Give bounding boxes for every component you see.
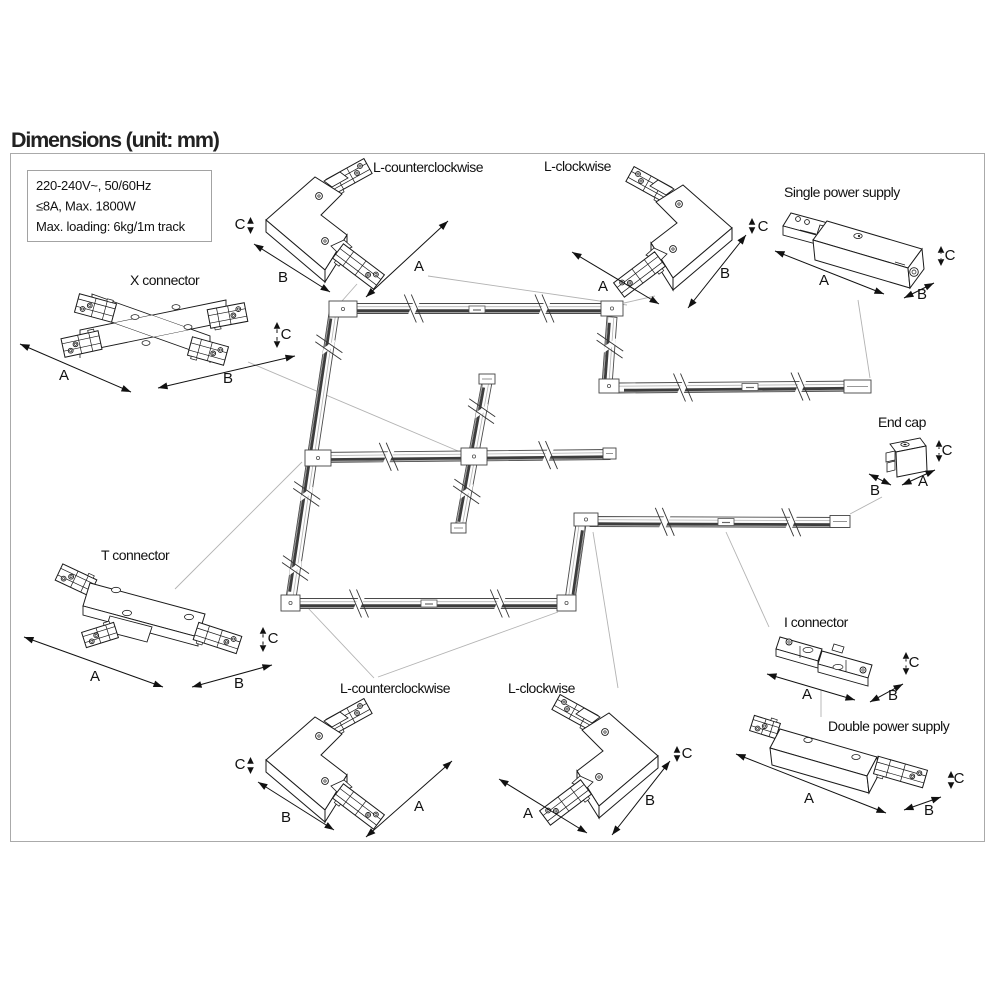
svg-text:B: B [720, 265, 730, 282]
svg-text:Single power supply: Single power supply [784, 184, 900, 200]
svg-text:C: C [758, 218, 769, 235]
svg-text:A: A [804, 790, 814, 807]
svg-text:C: C [235, 756, 246, 773]
svg-text:L-counterclockwise: L-counterclockwise [340, 680, 451, 696]
svg-text:A: A [802, 686, 812, 703]
svg-text:≤8A, Max. 1800W: ≤8A, Max. 1800W [36, 199, 136, 214]
svg-text:C: C [268, 630, 279, 647]
svg-text:B: B [645, 792, 655, 809]
svg-text:A: A [598, 278, 608, 295]
svg-text:A: A [819, 272, 829, 289]
svg-text:C: C [945, 247, 956, 264]
svg-text:X connector: X connector [130, 272, 200, 288]
svg-text:C: C [909, 654, 920, 671]
svg-text:C: C [682, 745, 693, 762]
svg-text:B: B [917, 286, 927, 303]
svg-text:L-counterclockwise: L-counterclockwise [373, 159, 484, 175]
svg-text:L-clockwise: L-clockwise [508, 680, 576, 696]
svg-text:C: C [954, 770, 965, 787]
svg-text:C: C [235, 216, 246, 233]
svg-text:Max. loading: 6kg/1m track: Max. loading: 6kg/1m track [36, 219, 186, 234]
svg-text:B: B [281, 809, 291, 826]
svg-text:A: A [918, 473, 928, 490]
svg-text:A: A [414, 798, 424, 815]
svg-text:A: A [59, 367, 69, 384]
svg-text:T connector: T connector [101, 547, 170, 563]
svg-text:Dimensions (unit: mm): Dimensions (unit: mm) [11, 128, 220, 152]
svg-text:A: A [523, 805, 533, 822]
svg-text:B: B [223, 370, 233, 387]
svg-text:End cap: End cap [878, 414, 927, 430]
svg-text:B: B [278, 269, 288, 286]
svg-text:Double power supply: Double power supply [828, 718, 950, 734]
svg-text:C: C [281, 326, 292, 343]
svg-text:A: A [90, 668, 100, 685]
svg-text:B: B [234, 675, 244, 692]
svg-text:B: B [924, 802, 934, 819]
svg-text:I connector: I connector [784, 614, 849, 630]
svg-text:A: A [414, 258, 424, 275]
svg-text:B: B [888, 687, 898, 704]
svg-text:C: C [942, 442, 953, 459]
svg-text:L-clockwise: L-clockwise [544, 158, 612, 174]
svg-text:B: B [870, 482, 880, 499]
svg-text:220-240V~, 50/60Hz: 220-240V~, 50/60Hz [36, 178, 151, 193]
